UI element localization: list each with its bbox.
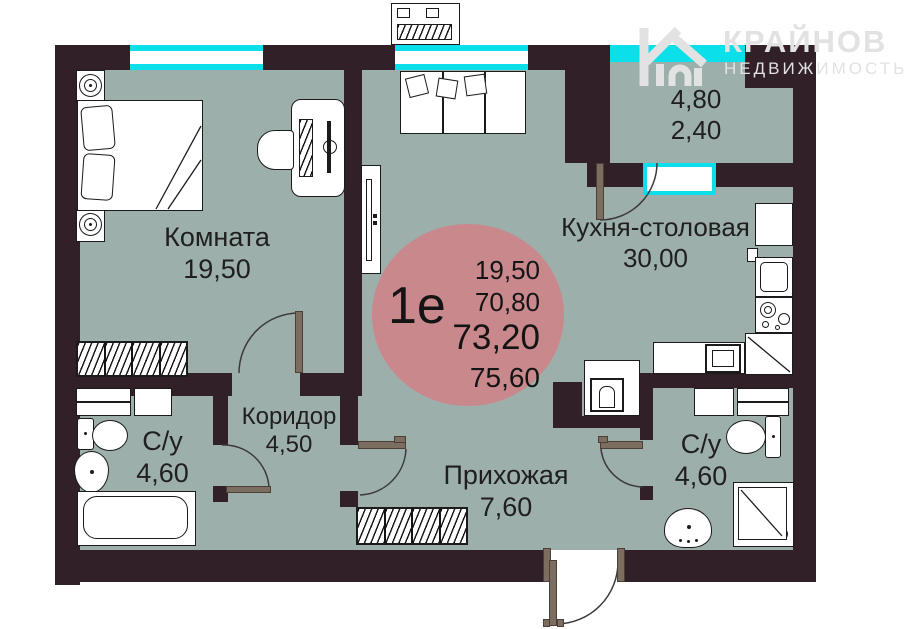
room-label-bath-right: С/у 4,60 xyxy=(645,429,757,493)
wall-balcony-bottom-b xyxy=(708,163,793,187)
pillow xyxy=(80,105,116,152)
room-name: С/у xyxy=(645,429,757,461)
cabinet xyxy=(134,388,172,416)
oven xyxy=(705,344,741,373)
wall-right xyxy=(793,62,816,582)
unit-area-total: 73,20 xyxy=(452,318,540,358)
house-logo-icon xyxy=(620,12,720,92)
unit-area-living: 19,50 xyxy=(475,255,540,286)
office-chair xyxy=(257,130,294,170)
unit-badge: 1е 19,50 70,80 73,20 75,60 xyxy=(372,224,564,406)
wall-bottom-left xyxy=(55,550,545,582)
brand-subtitle: НЕДВИЖИМОСТЬ xyxy=(724,59,907,79)
balcony-area-reduced: 2,40 xyxy=(638,115,754,146)
boiler xyxy=(590,378,624,412)
room-name: Прихожая xyxy=(416,460,596,492)
pillow xyxy=(80,153,115,201)
pillow xyxy=(464,74,488,97)
room-name: Коридор xyxy=(228,403,350,431)
window-bedroom xyxy=(130,45,263,70)
room-area: 4,60 xyxy=(645,461,757,493)
pillow xyxy=(405,74,429,98)
monitor-stand xyxy=(323,140,337,154)
stove xyxy=(755,297,793,333)
unit-area-with-balcony: 75,60 xyxy=(470,362,540,394)
wall-balcony-left xyxy=(565,70,610,163)
room-name: Комната xyxy=(117,222,317,254)
unit-area-2: 70,80 xyxy=(475,287,540,318)
washing-machine xyxy=(76,388,131,416)
wall-kitchen-pocket xyxy=(582,416,640,428)
room-area: 30,00 xyxy=(543,243,768,274)
sink xyxy=(664,508,712,548)
window-living xyxy=(395,45,528,70)
room-label-corridor: Коридор 4,50 xyxy=(228,403,350,460)
desk xyxy=(291,99,345,197)
room-label-bath-left: С/у 4,60 xyxy=(105,426,220,490)
brand-watermark: КРАЙНОВ НЕДВИЖИМОСТЬ xyxy=(620,12,908,92)
room-label-balcony: 4,80 2,40 xyxy=(638,84,754,145)
washing-machine xyxy=(694,388,734,416)
nightstand xyxy=(76,209,105,242)
pillow xyxy=(436,78,459,100)
wall-corridor-right-stub xyxy=(340,491,358,507)
room-area: 19,50 xyxy=(117,254,317,286)
sofa xyxy=(400,71,526,134)
room-area: 4,50 xyxy=(228,431,350,459)
keyboard xyxy=(299,119,313,177)
door-leaf-entrance xyxy=(549,560,557,626)
room-label-hallway: Прихожая 7,60 xyxy=(416,460,596,524)
wall-column-hallway xyxy=(553,382,582,428)
entrance-jamb-right xyxy=(617,548,625,582)
door-hinge-corridor xyxy=(394,436,406,443)
door-foot-entrance-l xyxy=(543,619,550,627)
door-leaf-bedroom xyxy=(295,311,303,373)
counter-corner xyxy=(745,333,793,375)
toilet-tank xyxy=(765,416,781,458)
wall-kitchen-bottom xyxy=(640,373,793,388)
cabinet xyxy=(737,388,789,416)
door-foot-entrance-r xyxy=(557,619,564,627)
room-area: 4,60 xyxy=(105,458,220,490)
bathtub xyxy=(77,491,196,546)
wardrobe-bedroom xyxy=(76,341,188,377)
room-label-kitchen: Кухня-столовая 30,00 xyxy=(543,212,768,273)
ac-unit xyxy=(391,3,460,45)
bed xyxy=(77,100,203,211)
room-name: Кухня-столовая xyxy=(543,212,768,243)
door-hinge-bath-right xyxy=(598,436,608,443)
unit-type: 1е xyxy=(388,276,446,336)
door-leaf-bath-left xyxy=(226,486,271,493)
nightstand xyxy=(76,70,105,103)
brand-name: КРАЙНОВ xyxy=(723,24,887,60)
room-name: С/у xyxy=(105,426,220,458)
window-kitchen-balcony xyxy=(643,163,716,195)
door-arc-entrance xyxy=(557,562,618,624)
wall-bedroom-bottom-b xyxy=(300,373,358,396)
room-label-bedroom: Комната 19,50 xyxy=(117,222,317,286)
wall-bedroom-right xyxy=(344,70,362,396)
mirror-cabinet xyxy=(361,165,381,274)
floor-plan: Комната 19,50 Кухня-столовая 30,00 4,80 … xyxy=(0,0,910,629)
room-area: 7,60 xyxy=(416,492,596,524)
wall-bottom-right xyxy=(625,550,816,582)
